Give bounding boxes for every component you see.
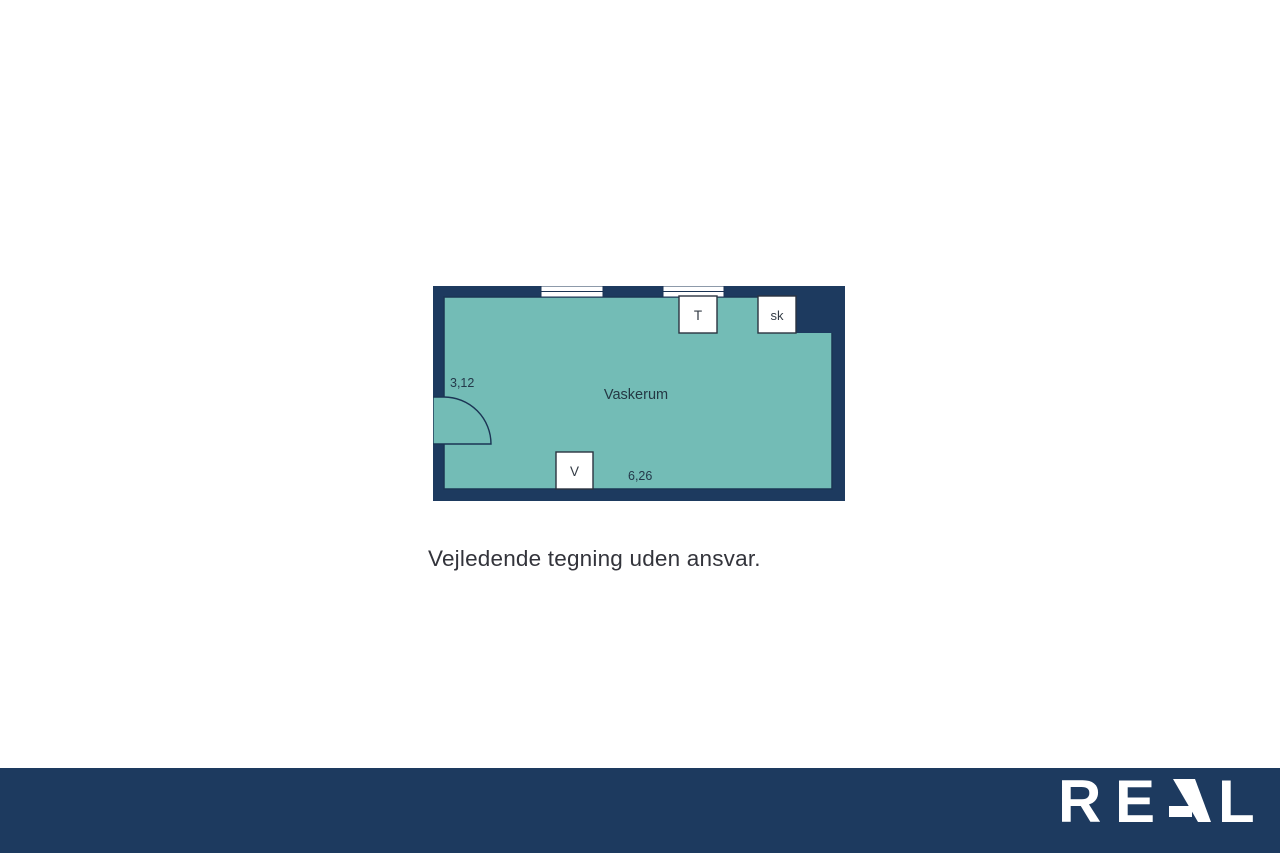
logo-letter-a-glyph [1169, 779, 1211, 822]
fixture-washer-label: V [570, 464, 579, 479]
disclaimer-caption: Vejledende tegning uden ansvar. [428, 546, 761, 572]
floorplan: T sk V 3,12 Vaskerum 6,26 [433, 286, 845, 501]
fixture-washer: V [556, 452, 593, 489]
fixture-closet: sk [758, 296, 796, 333]
logo-letter-l: L [1218, 779, 1255, 829]
window-left [541, 286, 603, 297]
footer-bar: R E L [0, 768, 1280, 853]
room-label: Vaskerum [604, 387, 668, 403]
fixture-closet-label: sk [771, 308, 785, 323]
logo-letter-r: R [1058, 779, 1101, 829]
floorplan-wall-notch [796, 296, 845, 333]
fixture-dryer-label: T [694, 308, 702, 323]
logo-letter-e: E [1115, 779, 1155, 829]
page: T sk V 3,12 Vaskerum 6,26 Vejledende teg… [0, 0, 1280, 853]
fixture-dryer: T [679, 296, 717, 333]
dimension-left: 3,12 [450, 376, 474, 390]
dimension-bottom: 6,26 [628, 469, 652, 483]
real-logo: R E L [1058, 779, 1258, 829]
